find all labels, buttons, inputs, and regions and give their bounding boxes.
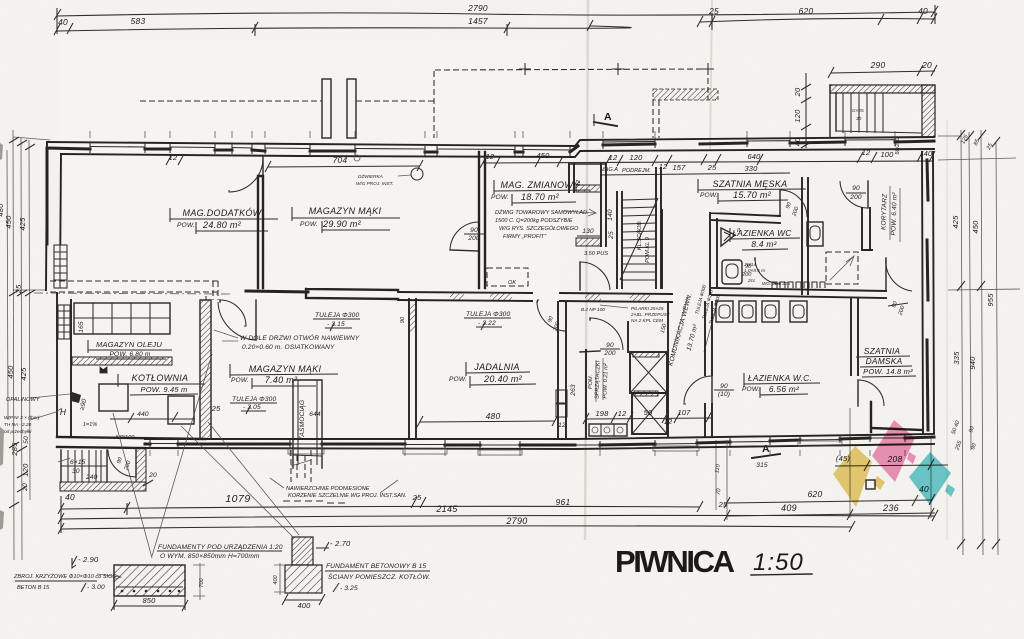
svg-text:POM.: POM. [588, 375, 594, 389]
svg-text:ZBROJ. KRZYŻOWE Φ10×Φ10 co SIO: ZBROJ. KRZYŻOWE Φ10×Φ10 co SIOS [13, 573, 116, 580]
svg-text:12: 12 [576, 179, 582, 186]
svg-text:ŁAZIENKA W.C.: ŁAZIENKA W.C. [748, 373, 812, 383]
svg-text:1.0×9.5 m: 1.0×9.5 m [744, 268, 765, 273]
svg-text:2cc: 2cc [747, 278, 756, 283]
svg-text:335: 335 [952, 351, 961, 365]
svg-text:12: 12 [558, 422, 566, 429]
svg-text:236: 236 [882, 503, 899, 513]
svg-text:130: 130 [582, 228, 594, 235]
svg-text:1500 C. Q=200kg PODSZYBIE: 1500 C. Q=200kg PODSZYBIE [495, 218, 573, 224]
svg-text:OPALINOWY: OPALINOWY [6, 397, 41, 403]
svg-text:FIRMY „PROFIT”: FIRMY „PROFIT” [503, 234, 547, 240]
svg-text:330: 330 [744, 164, 758, 173]
svg-text:1:50: 1:50 [753, 549, 804, 576]
svg-text:FUNDAMENT BETONOWY B 15: FUNDAMENT BETONOWY B 15 [326, 563, 426, 570]
svg-text:450: 450 [6, 365, 15, 379]
svg-text:PILARKI 25×25: PILARKI 25×25 [631, 306, 664, 311]
svg-text:MAGAZYN MĄKI: MAGAZYN MĄKI [249, 364, 322, 374]
svg-text:20.40 m²: 20.40 m² [483, 374, 523, 384]
svg-text:- 3.00: - 3.00 [87, 584, 105, 591]
svg-text:KORZENIE SZCZELNIE WG PROJ. I: KORZENIE SZCZELNIE WG PROJ. INST.SAN. [288, 493, 407, 499]
svg-text:25: 25 [608, 231, 615, 240]
svg-text:POW. 9.45 m: POW. 9.45 m [141, 385, 188, 394]
svg-text:157: 157 [672, 163, 686, 172]
svg-text:200: 200 [603, 350, 616, 357]
svg-text:DŹWIERKA: DŹWIERKA [358, 173, 383, 179]
svg-text:50: 50 [644, 408, 653, 417]
svg-text:od przechyłki: od przechyłki [4, 429, 32, 434]
svg-text:PODREJM.: PODREJM. [622, 168, 651, 174]
svg-text:TH NA - 2.20: TH NA - 2.20 [4, 422, 32, 427]
svg-text:OK: OK [508, 280, 516, 286]
svg-text:TULEJA Φ300: TULEJA Φ300 [315, 312, 359, 319]
svg-text:165: 165 [78, 321, 85, 333]
svg-text:POW.: POW. [300, 221, 318, 228]
svg-text:200: 200 [467, 235, 480, 242]
svg-text:120: 120 [629, 153, 643, 162]
svg-text:G×25: G×25 [852, 108, 864, 113]
svg-text:120: 120 [793, 109, 802, 123]
svg-text:18.70 m²: 18.70 m² [521, 192, 560, 202]
svg-text:- 3.05: - 3.05 [243, 404, 261, 411]
svg-text:850: 850 [142, 596, 156, 605]
svg-text:100: 100 [880, 150, 894, 159]
svg-text:ŚCIANY POMIESZCZ. KOTŁÓW.: ŚCIANY POMIESZCZ. KOTŁÓW. [328, 572, 430, 581]
svg-text:450: 450 [536, 151, 550, 160]
svg-text:30: 30 [856, 116, 862, 121]
svg-text:955: 955 [986, 293, 995, 307]
svg-text:POM.KL 9: POM.KL 9 [645, 237, 651, 263]
svg-text:290: 290 [870, 60, 886, 70]
svg-text:400: 400 [297, 601, 311, 610]
svg-text:JW14: JW14 [743, 262, 756, 267]
svg-text:A: A [604, 111, 612, 123]
svg-text:2145: 2145 [435, 504, 458, 514]
svg-text:2790: 2790 [505, 516, 527, 526]
svg-text:DŹWIG TOWAROWY SAMOWYŁAD.: DŹWIG TOWAROWY SAMOWYŁAD. [495, 209, 589, 216]
svg-text:TULEJA Φ300: TULEJA Φ300 [232, 396, 276, 403]
svg-text:140: 140 [607, 209, 614, 221]
svg-text:KL.SCHOD.: KL.SCHOD. [637, 220, 643, 250]
svg-text:30: 30 [72, 468, 80, 475]
svg-text:- 3.22: - 3.22 [478, 320, 496, 327]
svg-text:315: 315 [756, 462, 768, 469]
svg-text:- 2.70: - 2.70 [330, 539, 351, 548]
svg-text:MAG.A: MAG.A [600, 167, 618, 173]
svg-text:W/G PROJ. INST.: W/G PROJ. INST. [356, 181, 394, 186]
svg-text:WIP Nr 2 × (tber): WIP Nr 2 × (tber) [4, 415, 40, 420]
svg-text:704: 704 [333, 155, 348, 165]
svg-text:425: 425 [18, 217, 27, 231]
svg-text:POW. 0.21 m²: POW. 0.21 m² [602, 362, 609, 399]
svg-text:1=1%: 1=1% [83, 422, 97, 428]
svg-text:961: 961 [556, 497, 571, 507]
svg-text:40: 40 [918, 6, 928, 16]
svg-text:0.20×0.60 m. OSIATKOWANY: 0.20×0.60 m. OSIATKOWANY [242, 344, 335, 351]
svg-text:- 2.90: - 2.90 [78, 555, 99, 564]
svg-text:POW.: POW. [742, 386, 760, 393]
svg-text:1457: 1457 [468, 16, 488, 26]
svg-text:POW.: POW. [491, 194, 509, 201]
svg-text:6.56 m²: 6.56 m² [769, 384, 800, 394]
svg-text:8.4 m²: 8.4 m² [751, 239, 777, 249]
svg-text:198: 198 [595, 409, 609, 418]
svg-text:200: 200 [849, 194, 862, 201]
svg-text:25: 25 [211, 404, 221, 413]
svg-text:BETON B 15: BETON B 15 [17, 585, 50, 591]
svg-text:W/G RYS. SZCZEGÓŁOWEGO: W/G RYS. SZCZEGÓŁOWEGO [499, 225, 579, 232]
svg-text:90: 90 [852, 185, 860, 192]
svg-text:POW.: POW. [231, 377, 249, 384]
svg-text:240: 240 [85, 474, 98, 481]
svg-text:940: 940 [968, 356, 977, 370]
svg-text:MAGAZYN MĄKI: MAGAZYN MĄKI [309, 206, 382, 216]
svg-text:50/200: 50/200 [895, 137, 901, 155]
svg-text:- 3.15: - 3.15 [327, 321, 345, 328]
svg-text:NA 2 KPL CEM: NA 2 KPL CEM [631, 318, 663, 323]
svg-text:KOTŁOWNIA: KOTŁOWNIA [132, 373, 189, 383]
svg-text:90: 90 [400, 316, 406, 323]
svg-text:12: 12 [618, 409, 627, 418]
svg-text:3.50 PUS: 3.50 PUS [584, 251, 608, 257]
svg-text:NAWIERZCHNIE PODNIESIONE: NAWIERZCHNIE PODNIESIONE [286, 486, 370, 492]
svg-text:MAG.DODATKÓW: MAG.DODATKÓW [183, 208, 263, 218]
svg-text:PIWNICA: PIWNICA [615, 544, 735, 579]
svg-text:40: 40 [65, 492, 75, 502]
svg-text:DAMSKA: DAMSKA [866, 356, 903, 366]
svg-text:285: 285 [10, 442, 19, 457]
svg-text:480: 480 [486, 411, 501, 421]
svg-text:POW.: POW. [449, 376, 467, 383]
svg-text:90: 90 [470, 227, 478, 234]
svg-text:25: 25 [708, 6, 719, 16]
svg-text:20: 20 [148, 472, 157, 479]
svg-text:O WYM. 850×850mm H=700mm: O WYM. 850×850mm H=700mm [160, 553, 260, 560]
svg-text:TAŚMOCIĄG: TAŚMOCIĄG [297, 400, 306, 440]
svg-text:450: 450 [4, 215, 13, 229]
svg-text:620: 620 [808, 489, 823, 499]
svg-text:SZATNIA MĘSKA: SZATNIA MĘSKA [713, 179, 788, 189]
svg-text:40: 40 [793, 137, 802, 146]
svg-text:6×15: 6×15 [70, 459, 86, 466]
svg-text:263: 263 [570, 384, 577, 397]
svg-text:1079: 1079 [225, 493, 250, 505]
svg-text:A: A [762, 443, 770, 455]
svg-text:15.70 m²: 15.70 m² [733, 190, 772, 200]
svg-text:400: 400 [273, 574, 279, 584]
svg-text:POW.: POW. [177, 222, 195, 229]
svg-text:644: 644 [309, 411, 321, 418]
svg-text:480: 480 [0, 203, 5, 217]
svg-text:409: 409 [781, 503, 797, 513]
svg-text:620: 620 [799, 6, 814, 16]
svg-text:90: 90 [720, 383, 728, 390]
svg-text:POW.: POW. [700, 192, 718, 199]
svg-text:POW. 14.8 m²: POW. 14.8 m² [863, 367, 913, 376]
svg-text:TULEJA Φ300: TULEJA Φ300 [466, 311, 510, 318]
svg-text:KORYTARZ: KORYTARZ [880, 193, 888, 230]
svg-text:II: II [737, 228, 741, 234]
svg-text:640: 640 [747, 152, 761, 161]
svg-text:B.2 NP 100: B.2 NP 100 [581, 307, 605, 312]
svg-text:ŁAZIENKA WC: ŁAZIENKA WC [732, 228, 792, 238]
svg-text:W DOLE DRZWI OTWÓR NAWIEWNY: W DOLE DRZWI OTWÓR NAWIEWNY [240, 333, 360, 342]
svg-text:50: 50 [23, 436, 30, 444]
svg-text:(10): (10) [718, 391, 730, 398]
svg-text:440: 440 [137, 411, 149, 418]
svg-text:2790: 2790 [467, 3, 488, 13]
svg-text:24.80 m²: 24.80 m² [202, 220, 242, 230]
svg-text:90: 90 [606, 342, 614, 349]
svg-text:FUNDAMENTY POD URZĄDZENIA 1:20: FUNDAMENTY POD URZĄDZENIA 1:20 [158, 544, 283, 551]
svg-text:12: 12 [486, 152, 495, 161]
svg-text:425: 425 [19, 367, 28, 381]
svg-text:2×BL. PRZEPUST: 2×BL. PRZEPUST [630, 312, 671, 317]
svg-text:MAGAZYN OLEJU: MAGAZYN OLEJU [96, 340, 162, 349]
svg-text:29.90 m²: 29.90 m² [322, 219, 362, 229]
svg-text:20: 20 [793, 87, 802, 97]
svg-text:SZATNIA: SZATNIA [864, 346, 901, 356]
svg-text:JADALNIA: JADALNIA [473, 362, 519, 372]
svg-text:450: 450 [971, 220, 980, 234]
svg-text:- 3.25: - 3.25 [340, 585, 358, 592]
svg-text:12: 12 [659, 162, 668, 171]
svg-text:583: 583 [131, 16, 146, 26]
svg-text:425: 425 [951, 215, 960, 229]
